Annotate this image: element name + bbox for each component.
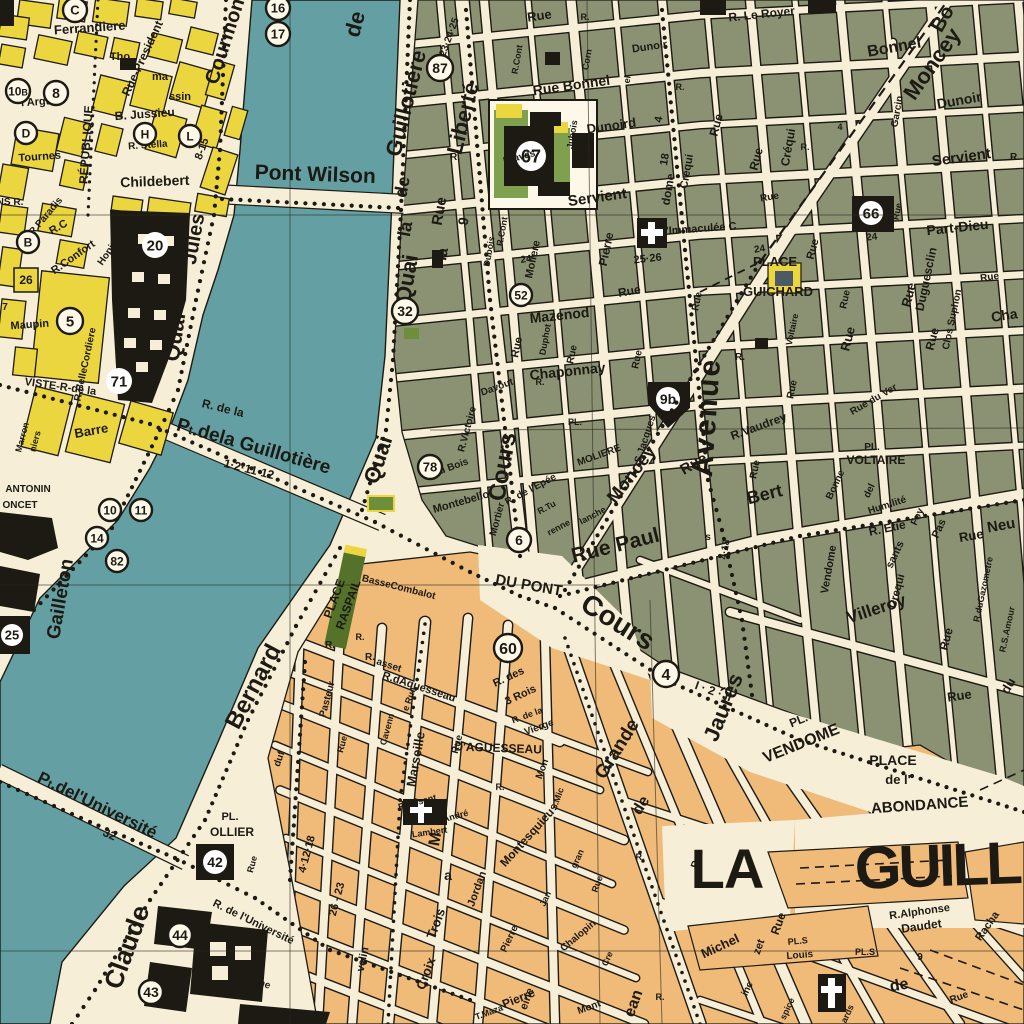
svg-text:8: 8 — [52, 85, 60, 101]
svg-text:R.: R. — [656, 992, 665, 1002]
svg-text:5: 5 — [66, 313, 74, 330]
svg-text:11: 11 — [135, 503, 148, 517]
svg-text:26: 26 — [19, 273, 33, 287]
svg-text:ma: ma — [152, 71, 169, 83]
svg-text:s: s — [705, 532, 711, 543]
svg-text:17: 17 — [271, 27, 285, 42]
svg-text:Childebert: Childebert — [120, 172, 190, 190]
svg-text:LA: LA — [691, 837, 764, 900]
svg-text:PL.S: PL.S — [787, 935, 808, 947]
svg-text:PL.: PL. — [864, 442, 880, 453]
svg-text:52: 52 — [514, 288, 528, 302]
svg-text:24: 24 — [753, 243, 766, 256]
svg-text:24: 24 — [866, 231, 879, 243]
svg-text:9b: 9b — [660, 391, 676, 407]
svg-text:6: 6 — [515, 532, 523, 548]
svg-text:a: a — [444, 867, 452, 883]
svg-text:78: 78 — [423, 460, 437, 475]
svg-text:NS R.: NS R. — [0, 197, 24, 208]
svg-text:82: 82 — [110, 554, 124, 568]
svg-text:14: 14 — [90, 531, 104, 545]
svg-text:44: 44 — [172, 927, 188, 943]
svg-text:C: C — [70, 3, 80, 18]
svg-text:B: B — [24, 235, 33, 249]
svg-text:Tho: Tho — [110, 51, 130, 63]
svg-text:OLLIER: OLLIER — [210, 825, 254, 839]
svg-text:10: 10 — [103, 503, 117, 517]
svg-text:R.: R. — [536, 377, 545, 387]
svg-text:9: 9 — [917, 952, 923, 963]
svg-text:R.: R. — [636, 852, 645, 862]
svg-text:R.: R. — [735, 352, 745, 363]
svg-text:R.: R. — [801, 142, 810, 152]
svg-text:R.: R. — [365, 652, 375, 663]
svg-text:43: 43 — [143, 984, 159, 1000]
svg-text:de: de — [390, 175, 413, 199]
svg-text:PLACE: PLACE — [753, 254, 797, 269]
svg-text:R.: R. — [676, 82, 685, 92]
svg-text:PL.: PL. — [221, 811, 238, 823]
svg-text:GUILL: GUILL — [854, 829, 1023, 902]
svg-text:PL.: PL. — [568, 417, 582, 427]
svg-text:D: D — [22, 126, 31, 140]
svg-text:GUICHARD: GUICHARD — [743, 284, 813, 299]
svg-text:60: 60 — [499, 641, 517, 658]
svg-text:ANTONIN: ANTONIN — [5, 484, 50, 495]
svg-text:42: 42 — [207, 854, 223, 870]
svg-text:R.: R. — [496, 782, 505, 792]
svg-text:de: de — [889, 976, 910, 996]
svg-text:Pont Wilson: Pont Wilson — [254, 161, 376, 188]
svg-text:Louis: Louis — [786, 949, 814, 962]
svg-text:4: 4 — [837, 122, 842, 132]
svg-text:PLACE: PLACE — [869, 752, 916, 768]
svg-text:H: H — [141, 127, 150, 141]
svg-text:25: 25 — [5, 628, 19, 643]
svg-text:71: 71 — [111, 373, 128, 390]
svg-text:32: 32 — [397, 303, 413, 319]
svg-text:PL.S: PL.S — [855, 947, 875, 957]
svg-text:de l': de l' — [885, 772, 911, 787]
svg-text:R.: R. — [581, 12, 590, 22]
svg-text:ssin: ssin — [169, 91, 191, 103]
svg-text:R.: R. — [450, 152, 460, 163]
svg-text:L: L — [186, 129, 193, 143]
svg-text:ONCET: ONCET — [3, 500, 38, 511]
svg-text:16: 16 — [271, 1, 285, 16]
svg-text:VOLTAIRE: VOLTAIRE — [847, 453, 906, 467]
svg-text:87: 87 — [432, 60, 448, 76]
svg-text:4: 4 — [662, 667, 671, 684]
svg-text:24·: 24· — [520, 253, 536, 266]
svg-text:R.: R. — [1010, 152, 1020, 163]
svg-text:18: 18 — [658, 152, 672, 166]
svg-text:R.: R. — [356, 632, 365, 642]
svg-text:10B: 10B — [8, 84, 28, 98]
svg-text:20: 20 — [147, 237, 164, 254]
svg-text:R.: R. — [325, 640, 335, 651]
svg-text:7: 7 — [2, 302, 8, 313]
svg-text:66: 66 — [863, 205, 880, 222]
